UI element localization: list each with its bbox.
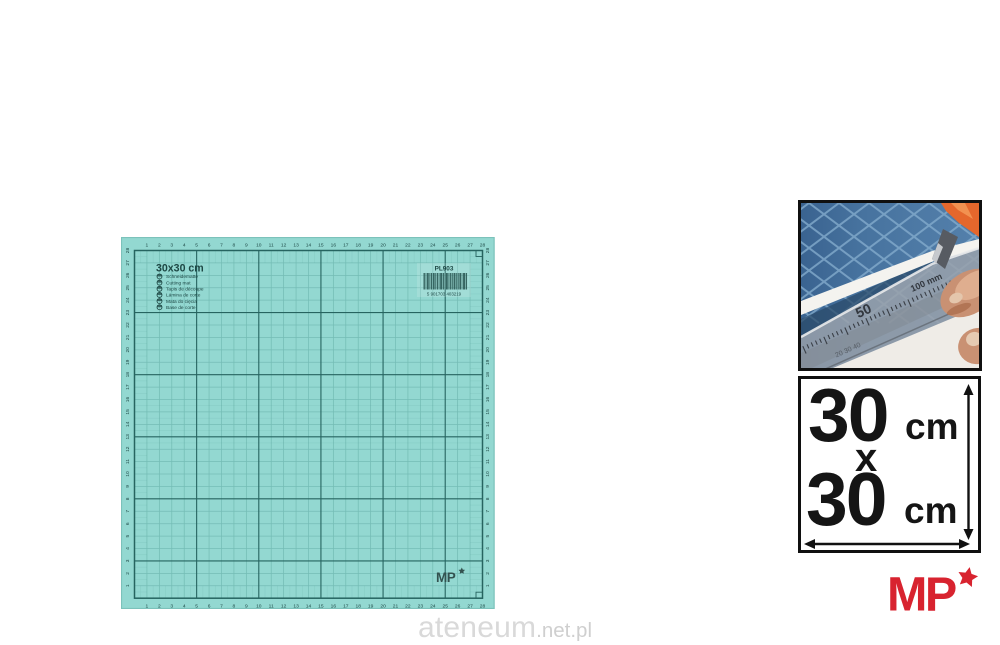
svg-text:14: 14 [306, 242, 312, 248]
svg-text:18: 18 [355, 603, 361, 609]
svg-text:10: 10 [485, 471, 491, 477]
svg-text:6: 6 [125, 522, 131, 525]
svg-text:17: 17 [125, 384, 131, 390]
svg-text:Schneidematte: Schneidematte [166, 274, 198, 280]
svg-text:6: 6 [208, 242, 211, 248]
svg-text:15: 15 [485, 409, 491, 415]
svg-text:5: 5 [485, 534, 491, 537]
svg-text:20: 20 [380, 242, 386, 248]
svg-text:14: 14 [125, 421, 131, 427]
svg-text:27: 27 [485, 260, 491, 266]
svg-text:15: 15 [318, 603, 324, 609]
svg-text:27: 27 [467, 242, 473, 248]
svg-text:28: 28 [125, 248, 131, 254]
svg-text:20: 20 [380, 603, 386, 609]
svg-text:12: 12 [281, 603, 287, 609]
svg-text:19: 19 [368, 242, 374, 248]
svg-text:10: 10 [256, 242, 262, 248]
svg-text:MP: MP [436, 570, 456, 585]
svg-text:cm: cm [904, 490, 957, 531]
svg-text:20: 20 [485, 347, 491, 353]
svg-text:12: 12 [125, 446, 131, 452]
svg-text:1: 1 [125, 584, 131, 587]
svg-text:7: 7 [220, 603, 223, 609]
svg-text:22: 22 [125, 322, 131, 328]
svg-text:12: 12 [281, 242, 287, 248]
svg-text:16: 16 [331, 242, 337, 248]
svg-text:2: 2 [125, 572, 131, 575]
svg-text:25: 25 [442, 242, 448, 248]
svg-text:2: 2 [158, 242, 161, 248]
svg-text:19: 19 [125, 359, 131, 365]
svg-text:2: 2 [158, 603, 161, 609]
svg-text:18: 18 [125, 372, 131, 378]
svg-text:20: 20 [125, 347, 131, 353]
svg-text:23: 23 [485, 310, 491, 316]
svg-text:6: 6 [485, 522, 491, 525]
svg-text:23: 23 [125, 310, 131, 316]
svg-text:13: 13 [485, 434, 491, 440]
svg-text:3: 3 [485, 559, 491, 562]
svg-text:24: 24 [485, 297, 491, 303]
svg-text:23: 23 [418, 603, 424, 609]
svg-text:10: 10 [256, 603, 262, 609]
svg-text:24: 24 [125, 297, 131, 303]
svg-text:12: 12 [485, 446, 491, 452]
svg-text:26: 26 [485, 272, 491, 278]
svg-text:27: 27 [467, 603, 473, 609]
svg-text:1: 1 [146, 242, 149, 248]
svg-text:17: 17 [343, 603, 349, 609]
svg-text:24: 24 [430, 242, 436, 248]
svg-text:21: 21 [485, 334, 491, 340]
svg-text:7: 7 [125, 510, 131, 513]
svg-text:7: 7 [485, 510, 491, 513]
svg-text:21: 21 [125, 334, 131, 340]
svg-text:3: 3 [170, 242, 173, 248]
svg-text:4: 4 [125, 547, 131, 550]
svg-text:8: 8 [233, 603, 236, 609]
svg-text:4: 4 [183, 242, 186, 248]
svg-text:9: 9 [125, 485, 131, 488]
svg-text:3: 3 [125, 559, 131, 562]
svg-text:9: 9 [485, 485, 491, 488]
svg-text:22: 22 [405, 603, 411, 609]
svg-text:25: 25 [442, 603, 448, 609]
svg-text:16: 16 [125, 397, 131, 403]
svg-text:8: 8 [125, 497, 131, 500]
svg-text:19: 19 [368, 603, 374, 609]
svg-text:21: 21 [393, 242, 399, 248]
svg-text:MP: MP [888, 568, 956, 616]
svg-text:6: 6 [208, 603, 211, 609]
svg-text:Cutting mat: Cutting mat [166, 280, 191, 286]
svg-text:21: 21 [393, 603, 399, 609]
svg-text:26: 26 [125, 272, 131, 278]
svg-text:4: 4 [183, 603, 186, 609]
svg-text:9: 9 [245, 603, 248, 609]
svg-text:Tapis de découpe: Tapis de découpe [166, 287, 204, 293]
svg-text:13: 13 [125, 434, 131, 440]
svg-text:10: 10 [125, 471, 131, 477]
svg-text:14: 14 [306, 603, 312, 609]
svg-text:15: 15 [318, 242, 324, 248]
svg-text:11: 11 [125, 459, 131, 464]
svg-text:Mata do cięcia: Mata do cięcia [166, 299, 197, 305]
svg-text:24: 24 [430, 603, 436, 609]
svg-text:5: 5 [125, 534, 131, 537]
svg-text:16: 16 [331, 603, 337, 609]
svg-text:PL903: PL903 [435, 266, 454, 273]
svg-text:1: 1 [485, 584, 491, 587]
svg-text:5 901703 403219: 5 901703 403219 [427, 292, 462, 297]
svg-text:23: 23 [418, 242, 424, 248]
svg-text:25: 25 [125, 285, 131, 291]
svg-text:11: 11 [485, 459, 491, 464]
svg-text:16: 16 [485, 397, 491, 403]
svg-text:28: 28 [480, 242, 486, 248]
svg-text:28: 28 [480, 603, 486, 609]
svg-text:2: 2 [485, 572, 491, 575]
svg-text:14: 14 [485, 421, 491, 427]
svg-text:19: 19 [485, 359, 491, 365]
svg-text:28: 28 [485, 248, 491, 254]
svg-text:8: 8 [233, 242, 236, 248]
svg-text:18: 18 [355, 242, 361, 248]
svg-text:26: 26 [455, 242, 461, 248]
svg-text:7: 7 [220, 242, 223, 248]
svg-text:13: 13 [293, 603, 299, 609]
svg-text:18: 18 [485, 372, 491, 378]
svg-text:26: 26 [455, 603, 461, 609]
svg-text:9: 9 [245, 242, 248, 248]
svg-text:25: 25 [485, 285, 491, 291]
svg-text:17: 17 [485, 384, 491, 390]
svg-text:13: 13 [293, 242, 299, 248]
svg-text:Lámina de corte: Lámina de corte [166, 293, 201, 299]
svg-text:5: 5 [195, 603, 198, 609]
svg-text:5: 5 [195, 242, 198, 248]
svg-text:27: 27 [125, 260, 131, 266]
svg-text:22: 22 [485, 322, 491, 328]
svg-text:22: 22 [405, 242, 411, 248]
svg-text:8: 8 [485, 497, 491, 500]
svg-text:cm: cm [905, 406, 958, 447]
svg-text:30x30 cm: 30x30 cm [156, 263, 204, 275]
svg-text:11: 11 [269, 242, 274, 248]
svg-text:Base de corte: Base de corte [166, 305, 196, 311]
svg-text:11: 11 [269, 603, 274, 609]
svg-text:3: 3 [170, 603, 173, 609]
svg-text:15: 15 [125, 409, 131, 415]
svg-text:1: 1 [146, 603, 149, 609]
svg-text:30: 30 [806, 457, 885, 541]
svg-text:4: 4 [485, 547, 491, 550]
svg-text:17: 17 [343, 242, 349, 248]
